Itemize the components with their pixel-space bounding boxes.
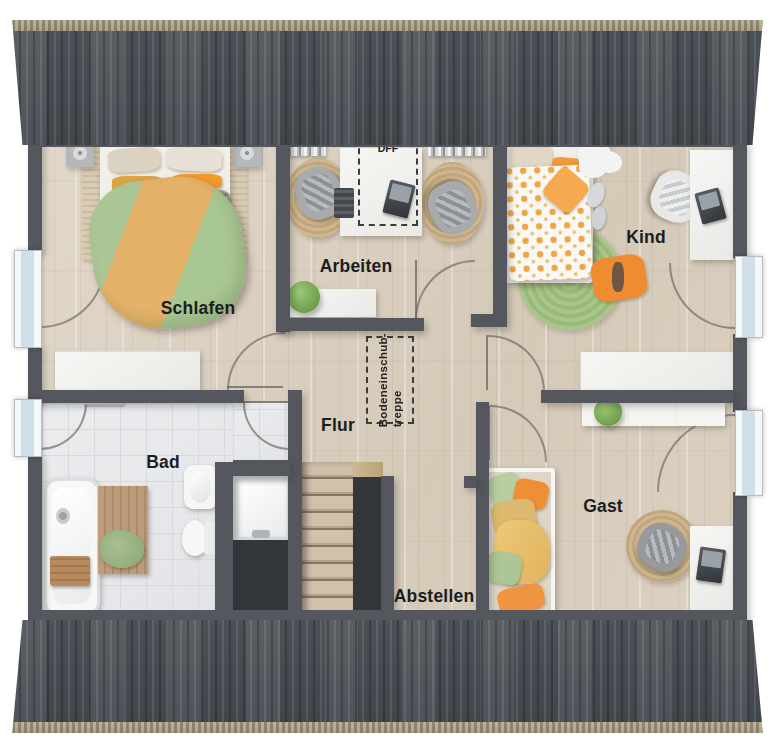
guest-pillow-green-2 [484, 549, 523, 586]
wall-right-upper [733, 140, 747, 258]
bath-caddy [50, 556, 90, 586]
attic-pulldown-stairs-marker: Bodeneinschub- treppe [366, 336, 414, 424]
schlafen-label-text: Schlafen [161, 298, 236, 319]
kids-long-sideboard [580, 352, 734, 390]
guest-laptop [696, 546, 726, 583]
bad-label-text: Bad [146, 452, 180, 473]
bathtub [44, 478, 100, 616]
chair-cushion [642, 526, 683, 566]
green-towel [100, 530, 144, 568]
desk-organizer [334, 188, 354, 218]
potted-plant [288, 281, 320, 313]
stairwell-void [353, 477, 381, 632]
window-schlafen [14, 250, 42, 348]
wall-kind-south [541, 390, 733, 403]
door-leaf-arbeiten [415, 260, 417, 318]
wall-schlafen-arbeiten [276, 140, 290, 332]
wall-arbeiten-kind [493, 140, 507, 316]
door-leaf-schlafen [227, 386, 283, 388]
wall-left-upper [28, 140, 42, 252]
bed-pillow-white [165, 146, 222, 173]
wall-left-lower [28, 453, 42, 632]
wall-schlafen-bad [28, 390, 244, 403]
toy-on-pillow [612, 262, 624, 292]
wall-abstellen-nub [464, 476, 476, 488]
wall-right-middle [733, 334, 747, 412]
roof-bottom-edge [12, 722, 763, 735]
roof-bottom [12, 620, 763, 735]
sink-basin [189, 471, 211, 503]
kind-label-text: Kind [626, 227, 666, 248]
roof-bottom-shingles [12, 620, 763, 722]
floorplan-canvas: Schlafen DFF Arbeiten Kind Bodeneinschub… [0, 0, 775, 756]
wall-shower-north [233, 460, 290, 476]
wall-arbeiten-south [276, 318, 424, 331]
flur-label-text: Flur [321, 415, 355, 436]
window-bad [14, 399, 42, 457]
lamp-left [73, 146, 87, 160]
attic-stairs-label: Bodeneinschub- treppe [376, 333, 405, 427]
chair-cushion [433, 187, 474, 231]
attic-stairs-label-line2: treppe [390, 333, 404, 427]
arbeiten-label-text: Arbeiten [320, 256, 393, 277]
roof-top [12, 18, 763, 145]
roof-top-shingles [12, 31, 763, 145]
bathtub-faucet [56, 508, 70, 524]
shower-void [233, 540, 290, 612]
gast-label-text: Gast [583, 496, 623, 517]
wall-abstellen-west [381, 476, 394, 632]
window-gast [735, 410, 763, 496]
attic-stairs-label-line1: Bodeneinschub- [376, 333, 390, 427]
shower-drain [252, 530, 270, 538]
wall-bad-east [215, 462, 233, 612]
roof-window-marker: DFF [358, 138, 418, 226]
wall-stairs-west [288, 390, 302, 632]
wall-arbeiten-kind-nub [471, 314, 507, 327]
wall-right-lower [733, 492, 747, 632]
roof-top-edge [12, 18, 763, 31]
staircase [302, 462, 353, 632]
bedroom-dresser [55, 350, 200, 392]
chair-cushion [299, 171, 339, 214]
bathtub-basin [52, 488, 91, 604]
door-leaf-bad [243, 401, 288, 403]
abstellen-label-text: Abstellen [394, 586, 475, 607]
bed-pillow-beige [107, 146, 161, 174]
lamp-right [240, 146, 254, 160]
window-kind [735, 256, 763, 338]
stairwell-parapet [353, 462, 383, 477]
wall-gast-west [476, 402, 489, 632]
door-leaf-kind [486, 335, 488, 390]
